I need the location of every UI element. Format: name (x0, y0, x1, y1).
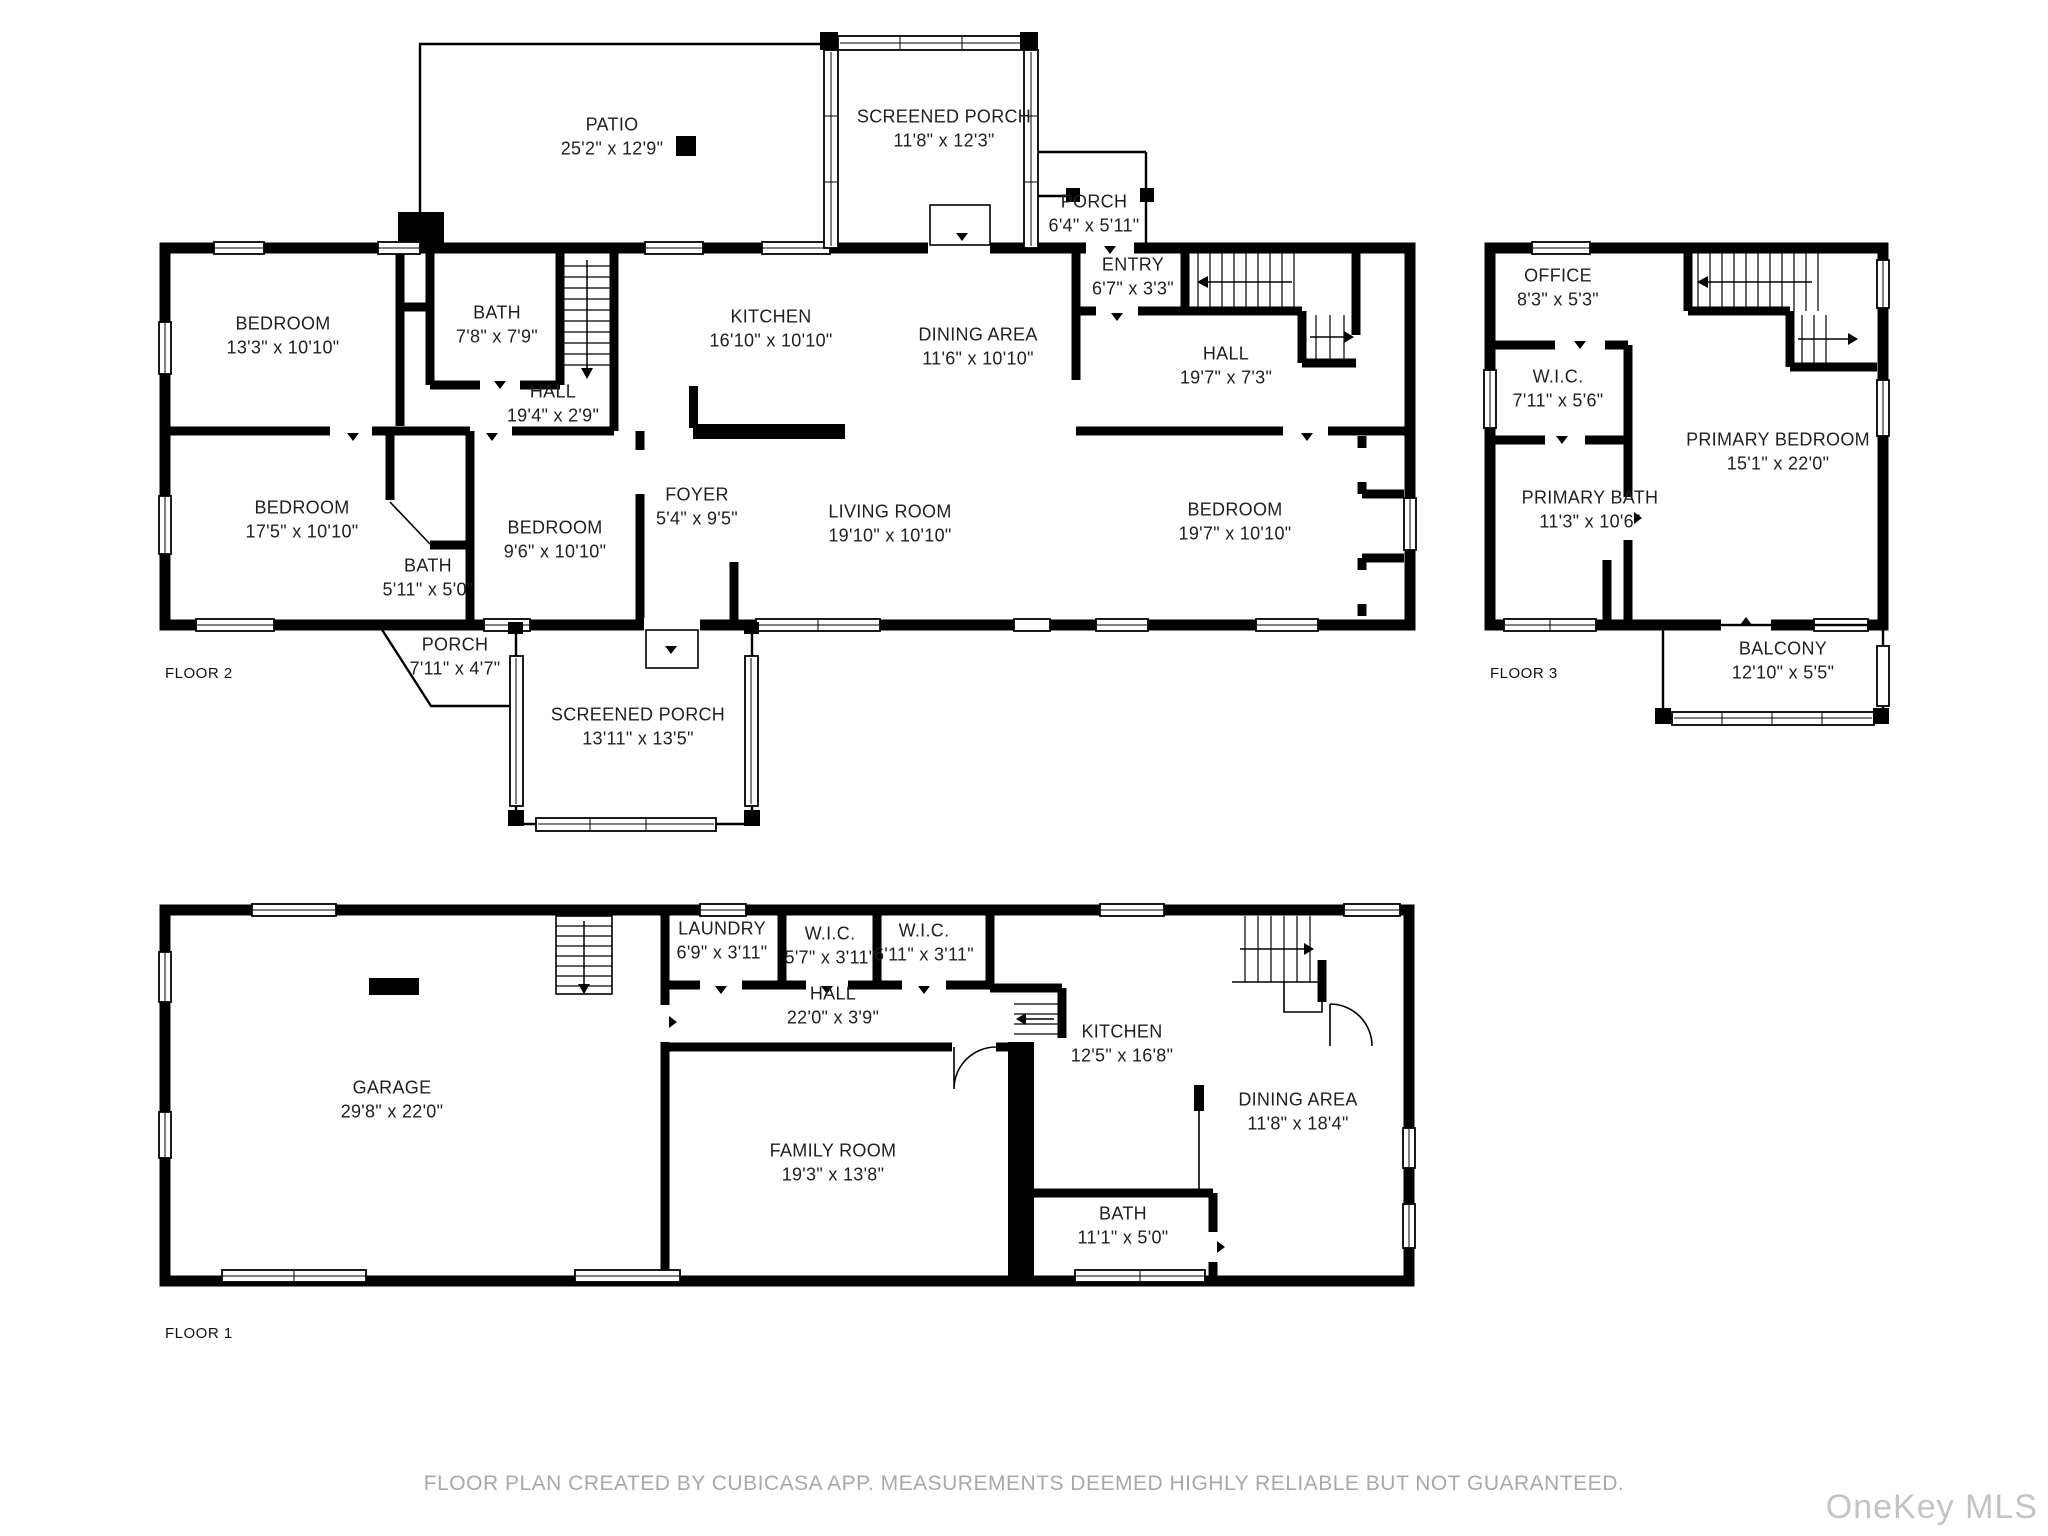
room-label-porch-bottom: PORCH 7'11" x 4'7" (410, 633, 501, 682)
room-label-laundry: LAUNDRY 6'9" x 3'11" (677, 917, 768, 966)
room-label-bedroom-2: BEDROOM 17'5" x 10'10" (246, 496, 359, 545)
floor1-hall-stairs (1014, 1004, 1058, 1034)
room-label-hall-f1: HALL 22'0" x 3'9" (787, 982, 879, 1031)
porch-door-swing (930, 205, 990, 245)
room-label-hall-right: HALL 19'7" x 7'3" (1180, 342, 1272, 391)
room-label-screened-porch-bottom: SCREENED PORCH 13'11" x 13'5" (551, 703, 725, 752)
floor1-garage-stairs (556, 916, 612, 994)
room-label-kitchen-f1: KITCHEN 12'5" x 16'8" (1071, 1020, 1174, 1069)
patio-grill-block (676, 136, 696, 156)
room-label-primary-bath: PRIMARY BATH 11'3" x 10'6" (1522, 486, 1659, 535)
garage-column-block (369, 978, 419, 995)
onekey-mls-watermark: OneKey MLS (1826, 1488, 2038, 1527)
room-label-bath-2: BATH 5'11" x 5'0" (383, 554, 474, 603)
room-label-patio: PATIO 25'2" x 12'9" (561, 113, 664, 162)
room-label-entry: ENTRY 6'7" x 3'3" (1092, 253, 1174, 302)
room-label-bath-1: BATH 7'8" x 7'9" (456, 301, 538, 350)
floor-plan-drawing (0, 0, 2048, 1536)
disclaimer-text: FLOOR PLAN CREATED BY CUBICASA APP. MEAS… (0, 1472, 2048, 1496)
floor2-plan (159, 32, 1416, 831)
floor-3-tag: FLOOR 3 (1490, 665, 1558, 682)
room-label-dining-f2: DINING AREA 11'6" x 10'10" (918, 323, 1037, 372)
family-room-door-arc (954, 1047, 996, 1089)
floor-2-tag: FLOOR 2 (165, 665, 233, 682)
room-label-porch-top: PORCH 6'4" x 5'11" (1049, 190, 1140, 239)
room-label-living-room: LIVING ROOM 19'10" x 10'10" (828, 500, 951, 549)
kitchen-counter-wall (693, 424, 845, 439)
room-label-wic-f3: W.I.C. 7'11" x 5'6" (1513, 365, 1604, 414)
room-label-bedroom-4: BEDROOM 19'7" x 10'10" (1179, 498, 1292, 547)
room-label-primary-bedroom: PRIMARY BEDROOM 15'1" x 22'0" (1686, 428, 1870, 477)
floor-1-tag: FLOOR 1 (165, 1325, 233, 1342)
room-label-foyer: FOYER 5'4" x 9'5" (656, 483, 738, 532)
room-label-bath-f1: BATH 11'1" x 5'0" (1078, 1202, 1169, 1251)
room-label-wic-2: W.I.C. 6'11" x 3'11" (874, 919, 974, 968)
bath-angled-door (390, 502, 430, 544)
room-label-wic-1: W.I.C. 5'7" x 3'11" (785, 922, 876, 971)
room-label-hall-mid: HALL 19'4" x 2'9" (507, 380, 599, 429)
room-label-kitchen-f2: KITCHEN 16'10" x 10'10" (709, 305, 832, 354)
room-label-bedroom-1: BEDROOM 13'3" x 10'10" (227, 312, 340, 361)
room-label-office: OFFICE 8'3" x 5'3" (1517, 264, 1599, 313)
floor1-thick-wall (1008, 1042, 1034, 1276)
room-label-family-room: FAMILY ROOM 19'3" x 13'8" (770, 1139, 897, 1188)
floor-plan-page: PATIO 25'2" x 12'9" SCREENED PORCH 11'8"… (0, 0, 2048, 1536)
room-label-bedroom-3: BEDROOM 9'6" x 10'10" (504, 516, 607, 565)
room-label-screened-porch-top: SCREENED PORCH 11'8" x 12'3" (857, 105, 1031, 154)
room-label-balcony: BALCONY 12'10" x 5'5" (1732, 637, 1835, 686)
room-label-garage: GARAGE 29'8" x 22'0" (341, 1076, 444, 1125)
floor2-stairs-middle (562, 260, 612, 379)
floor1-upper-stairs (1232, 916, 1372, 1046)
room-label-dining-f1: DINING AREA 11'8" x 18'4" (1238, 1088, 1357, 1137)
